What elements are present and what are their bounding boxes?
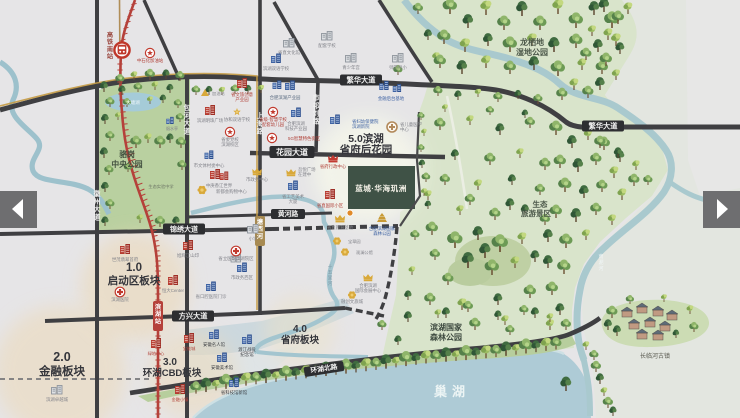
svg-text:生态: 生态: [533, 199, 548, 209]
svg-text:繁华大道: 繁华大道: [346, 75, 377, 84]
svg-text:南淝河: 南淝河: [598, 253, 603, 272]
svg-text:花园大道: 花园大道: [276, 147, 308, 157]
svg-text:十五里河: 十五里河: [328, 263, 333, 286]
svg-text:滨湖站: 滨湖站: [155, 303, 162, 325]
svg-text:包河大道: 包河大道: [184, 103, 191, 135]
svg-text:大厦: 大厦: [289, 198, 298, 205]
svg-text:金融小镇: 金融小镇: [172, 396, 189, 403]
svg-text:绿地中心: 绿地中心: [148, 350, 166, 357]
svg-text:省直国际小区: 省直国际小区: [317, 202, 344, 209]
svg-text:高铁南站: 高铁南站: [107, 31, 114, 61]
svg-text:旭辉江山印: 旭辉江山印: [177, 252, 200, 259]
svg-text:中心: 中心: [400, 126, 409, 133]
svg-text:金融后台基地: 金融后台基地: [378, 95, 405, 102]
svg-text:滨湖国家: 滨湖国家: [430, 322, 463, 332]
svg-text:滨湖新院: 滨湖新院: [352, 123, 370, 130]
svg-text:启动区板块: 启动区板块: [108, 274, 161, 287]
svg-text:国际会展中心: 国际会展中心: [355, 287, 382, 294]
svg-text:市政务西区: 市政务西区: [231, 274, 254, 281]
svg-text:滨湖双语学校: 滨湖双语学校: [263, 65, 290, 72]
svg-text:师范附小: 师范附小: [389, 64, 407, 71]
svg-text:龙栖地: 龙栖地: [519, 37, 544, 47]
svg-text:2.0: 2.0: [53, 350, 70, 364]
svg-text:省立医院滨湖院区: 省立医院滨湖院区: [218, 255, 254, 262]
svg-text:长临河古镇: 长临河古镇: [640, 352, 670, 360]
svg-text:环湖CBD板块: 环湖CBD板块: [143, 367, 202, 379]
svg-text:中庚香江世界: 中庚香江世界: [206, 182, 233, 189]
svg-text:繁华大道: 繁华大道: [588, 121, 619, 130]
svg-text:青少年宫: 青少年宫: [342, 64, 360, 71]
svg-text:省府板块: 省府板块: [280, 334, 320, 346]
svg-text:安徽名人馆: 安徽名人馆: [203, 341, 226, 348]
svg-text:5G智慧特色街区: 5G智慧特色街区: [288, 135, 321, 142]
svg-text:黄河路: 黄河路: [278, 209, 299, 218]
svg-text:省口腔医院门诊: 省口腔医院门诊: [196, 293, 227, 300]
svg-text:配套幼儿园: 配套幼儿园: [262, 121, 285, 128]
svg-text:加油站: 加油站: [212, 90, 225, 97]
svg-text:方兴大道: 方兴大道: [179, 311, 209, 320]
svg-text:滨湖校区: 滨湖校区: [221, 141, 239, 148]
svg-text:合肥滨湖产业园: 合肥滨湖产业园: [270, 94, 301, 101]
svg-text:中石化加油站: 中石化加油站: [137, 57, 164, 64]
svg-text:省府后花园: 省府后花园: [339, 143, 393, 156]
svg-text:森林公园: 森林公园: [373, 230, 391, 237]
svg-text:纪念馆: 纪念馆: [240, 351, 254, 358]
svg-text:小学: 小学: [249, 235, 257, 242]
svg-text:3.0: 3.0: [163, 357, 177, 368]
svg-text:省府行政中心: 省府行政中心: [320, 163, 347, 170]
svg-text:安徽美术馆: 安徽美术馆: [211, 364, 234, 371]
svg-text:巢湖: 巢湖: [433, 384, 470, 399]
svg-text:在建中: 在建中: [298, 171, 311, 178]
svg-text:宝能城: 宝能城: [183, 345, 196, 352]
svg-text:蓝城·华海玑洲: 蓝城·华海玑洲: [355, 183, 407, 193]
svg-text:滨湖卓越城: 滨湖卓越城: [46, 396, 69, 403]
svg-text:配套学校: 配套学校: [318, 42, 336, 49]
svg-text:省直文化馆: 省直文化馆: [278, 49, 301, 56]
svg-text:4.0: 4.0: [293, 324, 307, 335]
svg-text:徽州大道: 徽州大道: [93, 189, 101, 221]
svg-text:协和双语学校: 协和双语学校: [224, 116, 251, 123]
svg-text:省科技馆新馆: 省科技馆新馆: [221, 389, 248, 396]
svg-text:宝翠园: 宝翠园: [348, 238, 361, 245]
svg-text:烟水亭: 烟水亭: [166, 125, 178, 131]
svg-text:生态实验中学: 生态实验中学: [148, 183, 173, 190]
svg-text:融创文旅城: 融创文旅城: [341, 298, 364, 305]
svg-text:省直教育基地: 省直教育基地: [327, 224, 354, 231]
svg-text:森林公园: 森林公园: [430, 332, 462, 342]
svg-text:观澜公馆: 观澜公馆: [356, 249, 373, 256]
svg-text:科技产业园: 科技产业园: [285, 125, 308, 132]
svg-text:新都会购物中心: 新都会购物中心: [216, 188, 247, 195]
svg-text:市祁刘路: 市祁刘路: [313, 93, 320, 125]
svg-text:金融板块: 金融板块: [38, 364, 85, 378]
svg-text:骆岗: 骆岗: [119, 149, 135, 159]
svg-text:旅游景区: 旅游景区: [521, 208, 551, 218]
svg-text:锦绣大道: 锦绣大道: [170, 224, 198, 233]
svg-text:恒大Center: 恒大Center: [162, 287, 184, 294]
svg-text:市文体村委中心: 市文体村委中心: [194, 162, 225, 169]
svg-text:市政务中心: 市政务中心: [246, 176, 269, 183]
svg-text:湿地公园: 湿地公园: [516, 47, 548, 57]
svg-text:产业园: 产业园: [235, 96, 249, 103]
svg-text:滨湖医院: 滨湖医院: [111, 296, 129, 303]
svg-text:1.0: 1.0: [126, 262, 142, 274]
svg-text:滨湖明珠广场: 滨湖明珠广场: [197, 117, 224, 124]
svg-text:中央公园: 中央公园: [111, 159, 142, 169]
svg-text:大塘湖: 大塘湖: [126, 99, 140, 106]
